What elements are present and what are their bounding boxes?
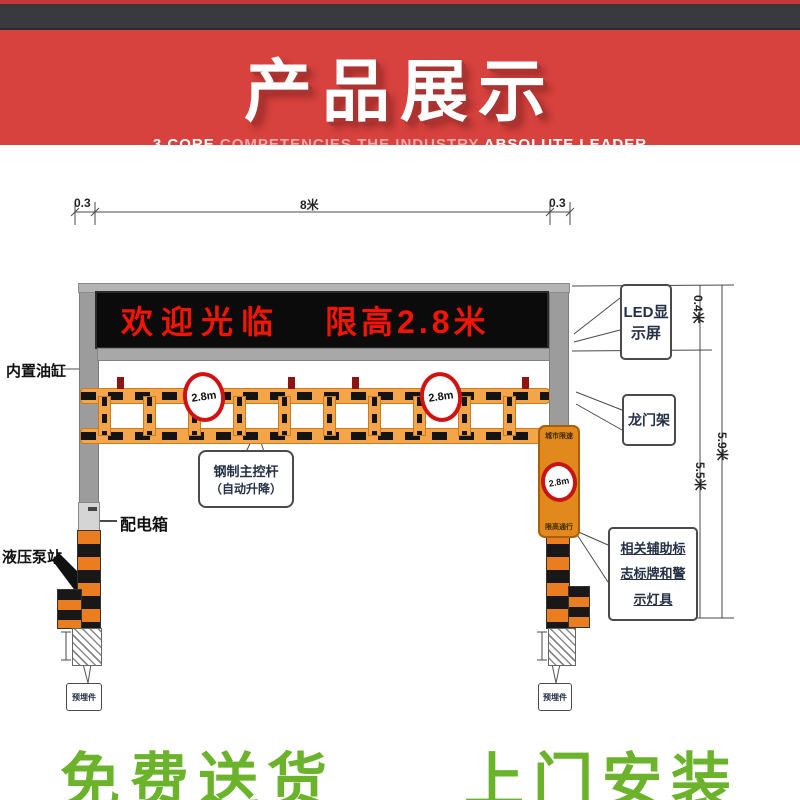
sub-beam (97, 348, 550, 361)
warning-light (522, 377, 529, 389)
aux-line2: 志标牌和警 (620, 561, 685, 586)
sign-bottom-text: 限高通行 (545, 522, 573, 532)
power-box-label: 配电箱 (120, 511, 168, 535)
aux-signs-callout: 相关辅助标 志标牌和警 示灯具 (608, 527, 698, 621)
footer-slogans: 免费送货 上门安装 (0, 733, 800, 800)
warning-light (352, 377, 359, 389)
left-foundation-hatch (72, 628, 102, 666)
led-screen-callout-line2: 示屏 (631, 322, 661, 343)
barrier-rung (323, 396, 336, 436)
control-rod-line1: 钢制主控杆 (213, 461, 278, 480)
led-display: 欢迎光临 限高2.8米 (95, 291, 549, 349)
gantry-callout: 龙门架 (622, 394, 676, 446)
control-rod-callout: 钢制主控杆 （自动升降） (198, 450, 294, 508)
dim-left-offset: 0.3 (74, 196, 91, 210)
sign-top-text: 城市限速 (545, 431, 573, 441)
power-box-detail (88, 507, 97, 511)
embed-part-callout-left: 预埋件 (66, 683, 102, 711)
barrier-rung (368, 396, 381, 436)
aux-line3: 示灯具 (633, 587, 672, 612)
dim-right-offset: 0.3 (549, 196, 566, 210)
barrier-rung (98, 396, 111, 436)
right-foundation-hatch (548, 628, 576, 666)
embed-part-callout-right: 预埋件 (538, 683, 572, 711)
barrier-rung (503, 396, 516, 436)
dim-span: 8米 (300, 196, 319, 213)
height-limit-board: 城市限速 2.8m 限高通行 (538, 425, 580, 538)
oil-cylinder-label: 内置油缸 (6, 360, 66, 381)
gantry-callout-text: 龙门架 (628, 410, 670, 430)
power-distribution-box (78, 502, 100, 532)
dim-clear-height: 5.5米 (692, 462, 709, 491)
warning-light (117, 377, 124, 389)
dim-total-height: 5.9米 (714, 432, 731, 461)
barrier-rung (278, 396, 291, 436)
slogan-free-delivery: 免费送货 (60, 733, 336, 800)
led-limit-text: 限高2.8米 (325, 297, 490, 343)
pump-station-label: 液压泵站 (2, 546, 62, 567)
led-screen-callout-line1: LED显 (623, 301, 668, 322)
led-welcome-text: 欢迎光临 (121, 297, 281, 343)
control-rod-line2: （自动升降） (210, 480, 282, 497)
warning-light (288, 377, 295, 389)
barrier-rung (143, 396, 156, 436)
slogan-onsite-install: 上门安装 (464, 733, 740, 800)
sign-limit-circle: 2.8m (538, 459, 580, 505)
right-attachment-box (568, 586, 590, 628)
hydraulic-pump-box (57, 589, 82, 629)
dim-led-height: 0.4米 (690, 295, 707, 324)
led-screen-callout: LED显 示屏 (620, 284, 672, 360)
aux-line1: 相关辅助标 (620, 536, 685, 561)
barrier-rung (233, 396, 246, 436)
right-striped-column (546, 530, 570, 629)
product-display-page: 产品展示 3 CORE COMPETENCIES THE INDUSTRY AB… (0, 0, 800, 800)
